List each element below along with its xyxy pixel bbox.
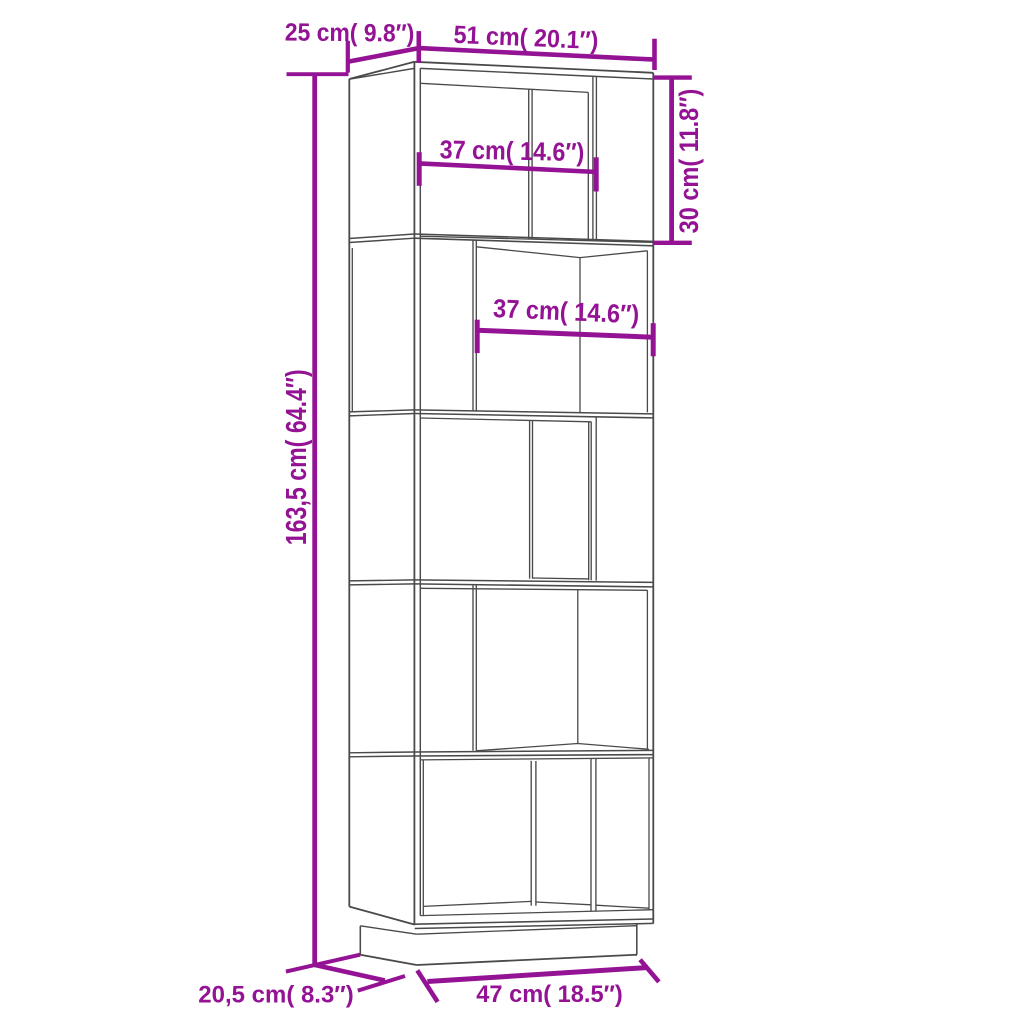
svg-text:163,5 cm( 64.4″): 163,5 cm( 64.4″): [281, 369, 313, 545]
svg-text:37 cm( 14.6″): 37 cm( 14.6″): [493, 293, 640, 329]
svg-text:25 cm( 9.8″): 25 cm( 9.8″): [285, 19, 415, 48]
svg-text:20,5 cm( 8.3″): 20,5 cm( 8.3″): [198, 981, 353, 1008]
svg-text:37 cm( 14.6″): 37 cm( 14.6″): [439, 134, 584, 167]
svg-text:30 cm( 11.8″): 30 cm( 11.8″): [674, 89, 704, 234]
svg-text:47 cm( 18.5″): 47 cm( 18.5″): [476, 981, 623, 1008]
